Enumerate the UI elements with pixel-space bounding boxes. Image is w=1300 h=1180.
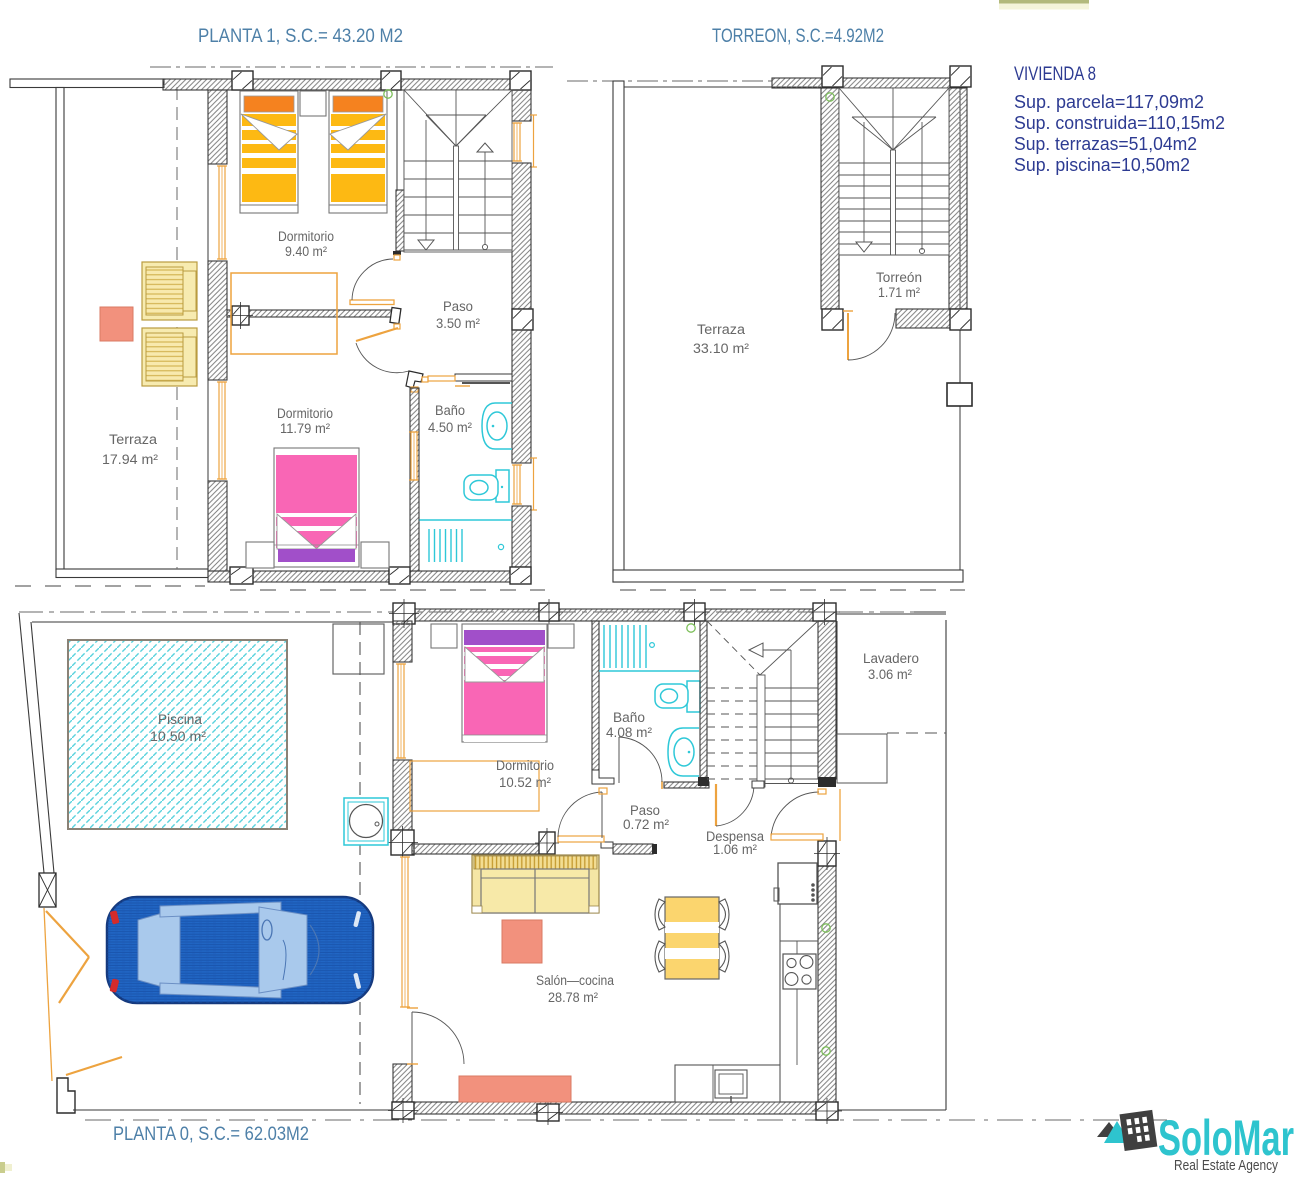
svg-text:Salón—cocina: Salón—cocina [536,973,614,988]
svg-text:Baño: Baño [435,403,465,418]
svg-text:0.72 m²: 0.72 m² [623,817,669,832]
svg-text:3.06 m²: 3.06 m² [868,667,912,682]
svg-text:11.79 m²: 11.79 m² [280,421,330,436]
svg-text:Torreón: Torreón [876,270,922,285]
svg-text:Piscina: Piscina [158,712,202,727]
svg-text:Paso: Paso [630,803,660,818]
svg-text:VIVIENDA 8: VIVIENDA 8 [1014,64,1096,85]
svg-text:28.78 m²: 28.78 m² [548,990,598,1005]
svg-text:Sup. terrazas=51,04m2: Sup. terrazas=51,04m2 [1014,134,1197,154]
svg-text:Lavadero: Lavadero [863,651,919,666]
svg-text:Paso: Paso [443,299,473,314]
svg-text:10.52 m²: 10.52 m² [499,775,551,790]
svg-text:PLANTA 0, S.C.= 62.03M2: PLANTA 0, S.C.= 62.03M2 [113,1124,309,1145]
svg-text:Real Estate Agency: Real Estate Agency [1174,1157,1278,1174]
svg-text:Sup. parcela=117,09m2: Sup. parcela=117,09m2 [1014,92,1204,112]
svg-text:17.94 m²: 17.94 m² [102,452,159,467]
svg-text:1.71 m²: 1.71 m² [878,285,920,300]
svg-text:10.50 m²: 10.50 m² [150,729,207,744]
svg-text:1.06 m²: 1.06 m² [713,842,757,857]
svg-text:TORREON, S.C.=4.92M2: TORREON, S.C.=4.92M2 [712,26,884,47]
svg-text:Sup. construida=110,15m2: Sup. construida=110,15m2 [1014,113,1225,133]
svg-text:Baño: Baño [613,710,645,725]
svg-text:9.40 m²: 9.40 m² [285,244,327,259]
svg-text:4.08 m²: 4.08 m² [606,725,652,740]
svg-text:Terraza: Terraza [697,322,746,337]
svg-text:4.50 m²: 4.50 m² [428,420,472,435]
svg-text:Dormitorio: Dormitorio [496,758,554,773]
svg-text:Sup. piscina=10,50m2: Sup. piscina=10,50m2 [1014,155,1190,175]
svg-text:Terraza: Terraza [109,432,158,447]
svg-text:Dormitorio: Dormitorio [277,406,333,421]
svg-text:33.10 m²: 33.10 m² [693,341,750,356]
svg-text:3.50 m²: 3.50 m² [436,316,480,331]
svg-text:Dormitorio: Dormitorio [278,229,334,244]
svg-text:PLANTA 1, S.C.= 43.20 M2: PLANTA 1, S.C.= 43.20 M2 [198,26,403,47]
